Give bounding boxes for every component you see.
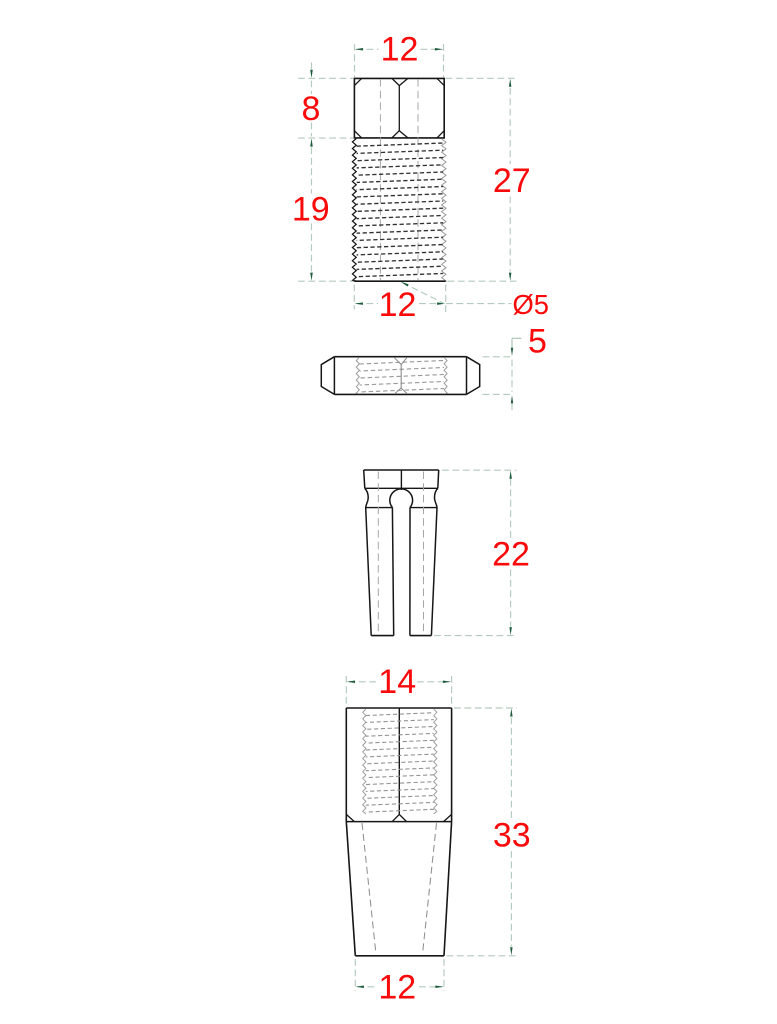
svg-text:33: 33 [493,817,531,855]
svg-text:19: 19 [292,190,330,228]
svg-text:12: 12 [379,286,417,324]
svg-text:12: 12 [378,968,416,1006]
svg-text:5: 5 [528,322,547,360]
svg-text:22: 22 [492,535,530,573]
svg-text:27: 27 [493,162,531,200]
svg-text:12: 12 [381,31,419,69]
svg-text:Ø5: Ø5 [512,289,549,320]
svg-text:8: 8 [301,90,320,128]
svg-text:14: 14 [378,663,416,701]
